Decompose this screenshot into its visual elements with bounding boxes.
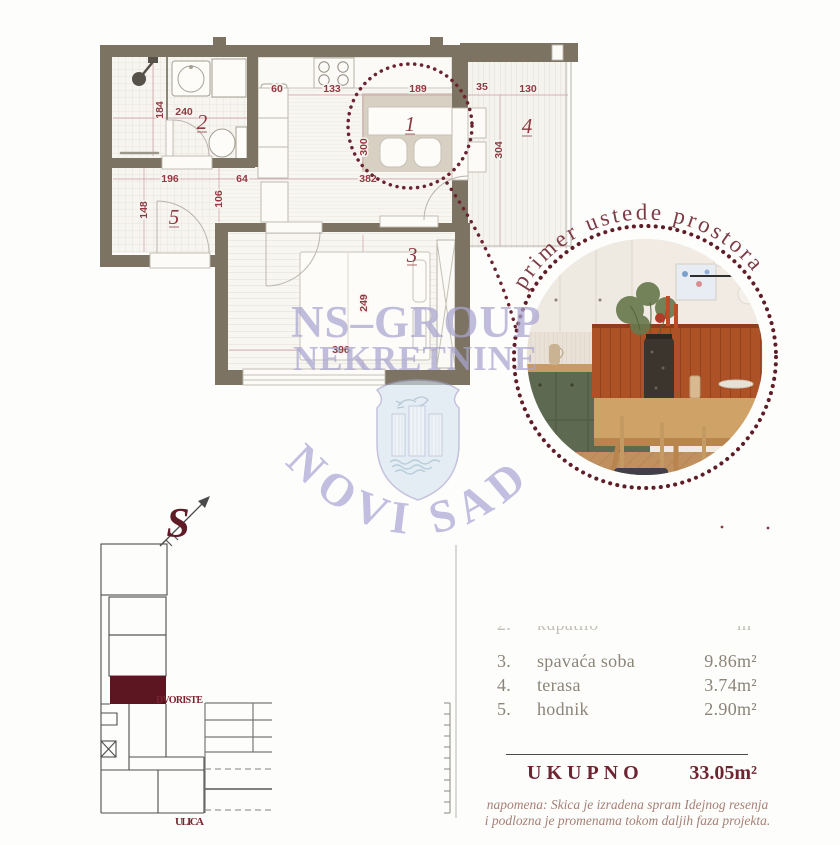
entrance-door bbox=[150, 253, 210, 268]
table-row-hallway: 5. hodnik 2.90m² bbox=[497, 699, 757, 723]
crest-towers bbox=[392, 406, 442, 456]
area-table: 2. kupatilo m² 3. spavaća soba 9.86m² 4.… bbox=[497, 626, 757, 723]
dim-189: 189 bbox=[409, 83, 427, 95]
street-markings bbox=[205, 703, 272, 813]
courtyard-label: DVORISTE bbox=[156, 695, 204, 706]
terrace-wall-gap bbox=[552, 45, 563, 60]
row-value: 2.90m² bbox=[677, 699, 757, 720]
balcony-door-leaf-b bbox=[468, 142, 486, 172]
row-number: 2. bbox=[497, 626, 537, 635]
total-row: UKUPNO 33.05m² bbox=[497, 762, 757, 785]
row-number: 3. bbox=[497, 651, 537, 672]
corridor-floor bbox=[215, 167, 452, 223]
bedroom-top-window bbox=[380, 216, 438, 227]
room-1-dining: 1 bbox=[405, 112, 416, 136]
room-3-bedroom: 3 bbox=[406, 243, 418, 267]
dim-130: 130 bbox=[519, 83, 537, 95]
disclaimer-note: napomena: Skica je izradena spram Idejno… bbox=[455, 797, 800, 829]
table-row-clipped: 2. kupatilo m² bbox=[497, 626, 757, 639]
stray-dot-a bbox=[721, 526, 724, 529]
bathroom-door-gap bbox=[162, 156, 212, 169]
room-2-bathroom: 2 bbox=[197, 110, 208, 134]
dim-64: 64 bbox=[236, 173, 248, 185]
row-value: 9.86m² bbox=[677, 651, 757, 672]
washing-machine bbox=[212, 59, 246, 97]
row-value: 3.74m² bbox=[677, 675, 757, 696]
street-label: ULICA bbox=[175, 816, 205, 828]
room-4-terrace: 4 bbox=[522, 114, 533, 138]
row-label: kupatilo bbox=[537, 626, 677, 635]
photo-vase bbox=[644, 334, 674, 408]
photo-wall-art bbox=[676, 264, 716, 300]
dim-196: 196 bbox=[161, 173, 179, 185]
dim-304: 304 bbox=[493, 141, 505, 159]
novi-sad-crest bbox=[377, 380, 459, 500]
row-value: m² bbox=[677, 626, 757, 635]
room-5-hallway: 5 bbox=[169, 205, 180, 229]
note-line1: napomena: Skica je izradena spram Idejno… bbox=[455, 797, 800, 813]
row-number: 5. bbox=[497, 699, 537, 720]
compass: S bbox=[160, 496, 210, 547]
elevator-box bbox=[101, 741, 116, 757]
row-label: hodnik bbox=[537, 699, 677, 720]
toilet bbox=[209, 127, 247, 159]
row-number: 4. bbox=[497, 675, 537, 696]
site-plan bbox=[101, 544, 204, 813]
table-divider bbox=[506, 754, 748, 755]
total-value: 33.05m² bbox=[689, 762, 757, 785]
compass-north-letter: S bbox=[166, 501, 189, 547]
dim-106: 106 bbox=[213, 190, 225, 208]
interior-photo: primer ustede prostora bbox=[507, 199, 780, 577]
note-line2: i podlozna je promenama tokom daljih faz… bbox=[455, 813, 800, 829]
table-row-terrace: 4. terasa 3.74m² bbox=[497, 675, 757, 699]
table-row-bedroom: 3. spavaća soba 9.86m² bbox=[497, 651, 757, 675]
dim-60: 60 bbox=[271, 83, 283, 95]
row-label: spavaća soba bbox=[537, 651, 677, 672]
stray-dot-b bbox=[767, 527, 770, 530]
total-label: UKUPNO bbox=[527, 762, 689, 785]
dim-35: 35 bbox=[476, 81, 488, 93]
bedroom-door-gap bbox=[266, 222, 322, 233]
bath-sink bbox=[172, 61, 210, 96]
bathroom-door-leaf bbox=[166, 120, 173, 156]
dim-148: 148 bbox=[138, 201, 150, 219]
watermark-brand-line2: NEKRETNINE bbox=[293, 341, 538, 376]
dim-184: 184 bbox=[154, 101, 166, 119]
flyer-canvas: 184 240 60 133 189 35 130 300 304 382 19… bbox=[0, 0, 840, 840]
dim-240: 240 bbox=[175, 106, 193, 118]
section-ruler bbox=[444, 545, 456, 818]
dim-382: 382 bbox=[359, 173, 377, 185]
row-label: terasa bbox=[537, 675, 677, 696]
kitchen-cabinets bbox=[258, 88, 288, 222]
dim-133: 133 bbox=[323, 83, 341, 95]
dim-300: 300 bbox=[358, 138, 370, 156]
